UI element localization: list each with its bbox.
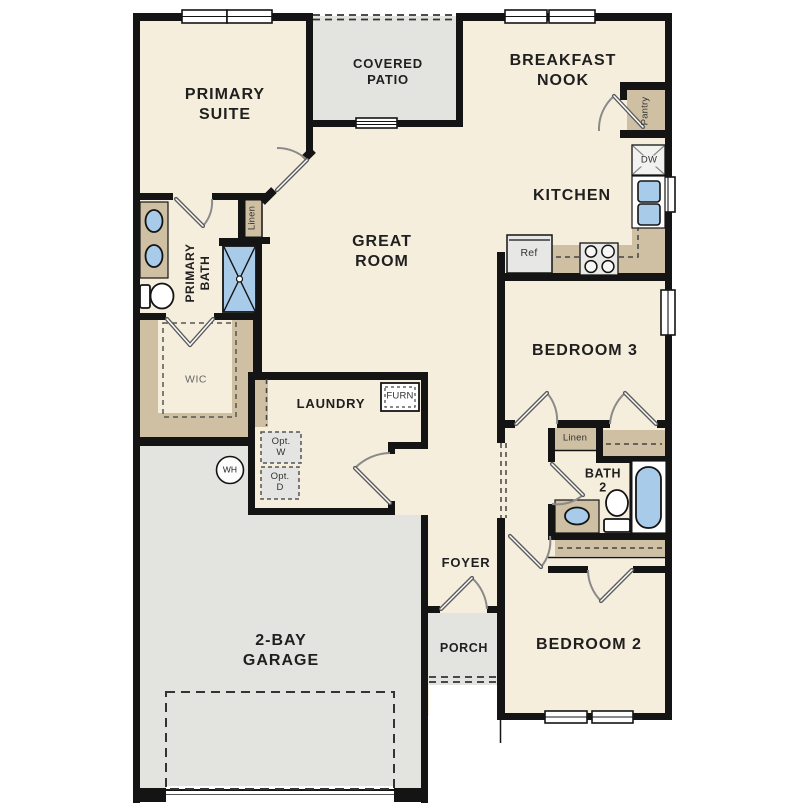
- room-label-wic: WIC: [185, 373, 207, 386]
- room-label-bath-2: BATH 2: [585, 467, 621, 496]
- bedroom3-closet: [603, 430, 665, 456]
- room-label-primary-bath: PRIMARY BATH: [183, 243, 213, 302]
- dishwasher-label: DW: [640, 156, 658, 167]
- kitchen-sink: [638, 181, 660, 202]
- shower-drain: [237, 276, 243, 282]
- room-label-garage: 2-BAY GARAGE: [243, 631, 319, 671]
- room-label-breakfast-nook: BREAKFAST NOOK: [510, 51, 617, 91]
- floor-plan: PRIMARY SUITE COVERED PATIO BREAKFAST NO…: [0, 0, 810, 810]
- bathtub: [636, 467, 661, 528]
- sink: [146, 245, 163, 267]
- burner: [602, 245, 614, 257]
- kitchen-sink: [638, 204, 660, 225]
- toilet: [151, 284, 174, 309]
- burner: [585, 261, 597, 273]
- sink: [146, 210, 163, 232]
- linen-hall-label: Linen: [563, 434, 587, 445]
- sliding-door: [356, 118, 397, 128]
- room-label-primary-suite: PRIMARY SUITE: [185, 85, 265, 125]
- room-label-porch: PORCH: [440, 641, 488, 657]
- room-label-laundry: LAUNDRY: [297, 396, 366, 412]
- wic-floor: [158, 320, 232, 413]
- sink: [565, 508, 589, 525]
- room-label-bedroom-2: BEDROOM 2: [536, 635, 642, 655]
- walkway: [429, 685, 501, 743]
- room-label-great-room: GREAT ROOM: [352, 232, 412, 272]
- room-label-bedroom-3: BEDROOM 3: [532, 341, 638, 361]
- floor-plan-graphics: [0, 0, 810, 810]
- furnace-label: FURN: [386, 392, 413, 403]
- room-label-covered-patio: COVERED PATIO: [353, 56, 423, 89]
- water-heater-label: WH: [223, 465, 237, 476]
- opt-dryer-label: Opt. D: [271, 472, 290, 494]
- burner: [585, 246, 596, 257]
- garage-floor-right: [388, 515, 421, 788]
- burner: [602, 261, 614, 273]
- room-label-foyer: FOYER: [442, 555, 491, 571]
- room-label-kitchen: KITCHEN: [533, 186, 611, 206]
- pantry-label: Pantry: [641, 97, 652, 126]
- toilet-tank: [140, 285, 150, 308]
- toilet-tank: [604, 519, 630, 532]
- opt-washer-label: Opt. W: [272, 437, 291, 459]
- refrigerator-label: Ref: [521, 247, 538, 259]
- linen-primary-label: Linen: [248, 206, 259, 230]
